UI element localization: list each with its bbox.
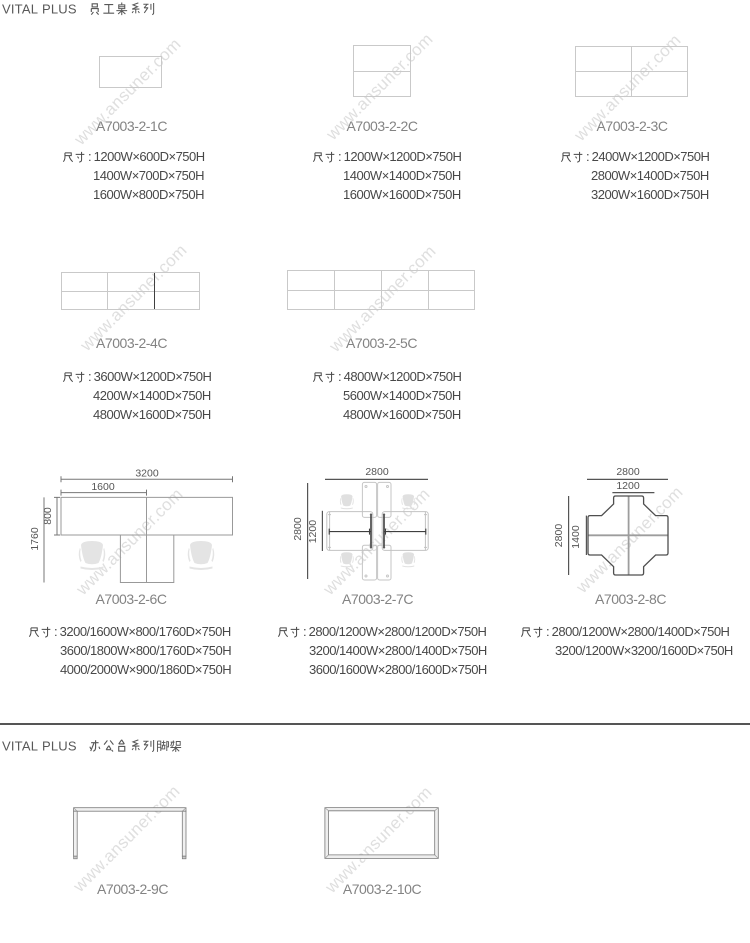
- svg-text:1200: 1200: [616, 480, 640, 492]
- svg-text:1600: 1600: [91, 481, 115, 493]
- svg-text:2800: 2800: [365, 466, 389, 478]
- svg-text:1760: 1760: [30, 527, 41, 551]
- svg-text:3200: 3200: [135, 468, 159, 480]
- svg-text:1400: 1400: [570, 525, 582, 549]
- svg-text:1200: 1200: [307, 520, 319, 544]
- svg-text:2800: 2800: [293, 517, 304, 541]
- svg-text:2800: 2800: [553, 524, 565, 548]
- svg-text:2800: 2800: [616, 466, 640, 478]
